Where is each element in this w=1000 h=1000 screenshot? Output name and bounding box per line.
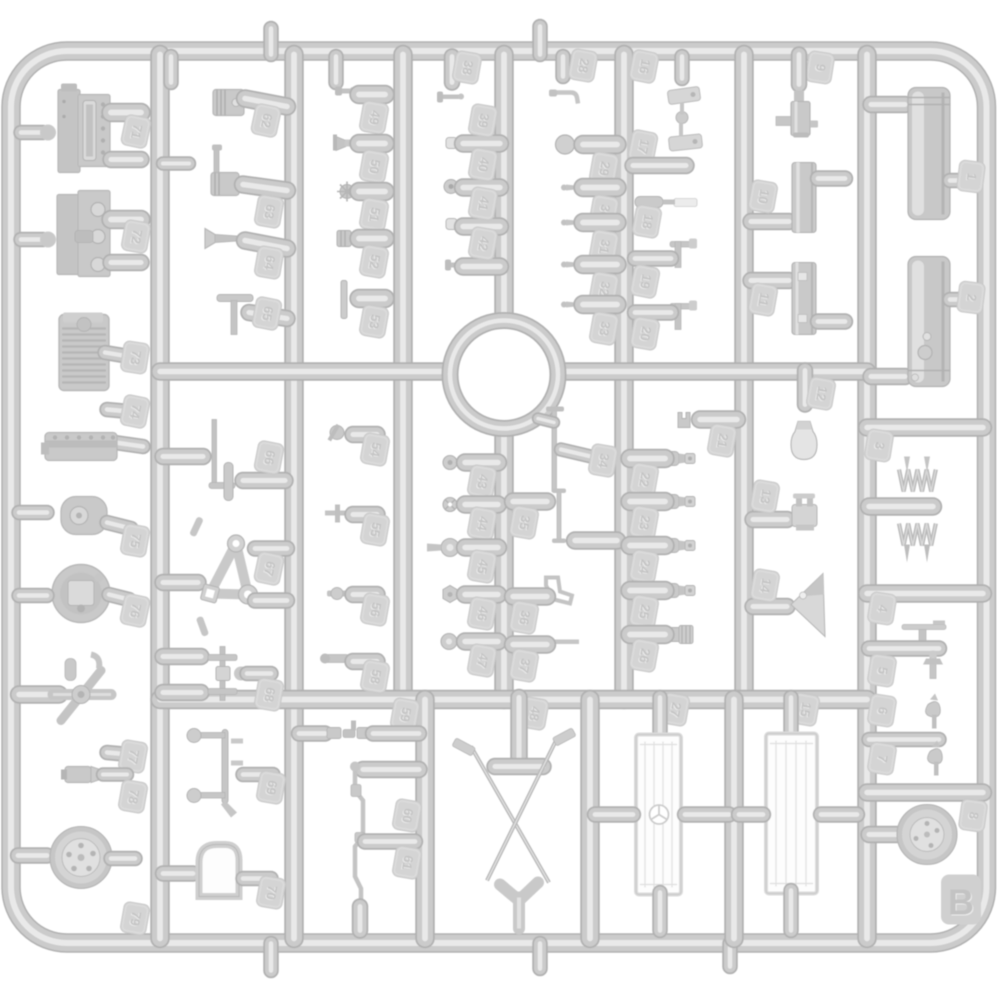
svg-text:61: 61 <box>399 854 416 871</box>
svg-text:72: 72 <box>128 228 145 245</box>
svg-text:53: 53 <box>366 313 383 330</box>
svg-text:78: 78 <box>125 788 142 805</box>
svg-text:71: 71 <box>128 123 146 140</box>
svg-text:43: 43 <box>474 473 491 490</box>
svg-text:79: 79 <box>127 910 144 927</box>
svg-text:13: 13 <box>757 488 774 505</box>
svg-text:50: 50 <box>366 158 383 175</box>
svg-text:49: 49 <box>366 109 383 126</box>
svg-text:63: 63 <box>261 203 278 220</box>
svg-text:60: 60 <box>399 807 416 824</box>
svg-text:75: 75 <box>127 532 144 549</box>
svg-text:21: 21 <box>714 432 731 449</box>
svg-text:45: 45 <box>474 558 491 575</box>
svg-text:55: 55 <box>367 521 384 538</box>
svg-text:15: 15 <box>797 701 814 718</box>
svg-text:23: 23 <box>636 514 653 531</box>
svg-text:68: 68 <box>261 686 278 703</box>
svg-text:41: 41 <box>475 195 492 212</box>
svg-text:47: 47 <box>474 652 491 669</box>
svg-text:76: 76 <box>127 602 145 619</box>
svg-text:66: 66 <box>261 449 278 466</box>
svg-text:22: 22 <box>636 471 653 488</box>
svg-text:77: 77 <box>125 748 142 765</box>
svg-text:73: 73 <box>127 349 144 366</box>
svg-text:36: 36 <box>516 609 533 626</box>
svg-text:35: 35 <box>516 514 533 531</box>
svg-text:40: 40 <box>475 156 492 173</box>
svg-text:62: 62 <box>258 112 276 129</box>
svg-text:59: 59 <box>397 706 414 723</box>
svg-text:39: 39 <box>475 112 492 129</box>
svg-text:19: 19 <box>637 273 654 290</box>
svg-text:31: 31 <box>596 238 613 255</box>
svg-text:46: 46 <box>474 605 491 622</box>
svg-text:25: 25 <box>636 603 653 620</box>
svg-text:10: 10 <box>755 188 772 205</box>
svg-text:42: 42 <box>475 235 492 252</box>
svg-text:32: 32 <box>596 280 613 297</box>
svg-text:28: 28 <box>575 57 592 74</box>
svg-text:37: 37 <box>516 657 533 674</box>
svg-text:58: 58 <box>367 668 384 685</box>
svg-text:20: 20 <box>637 325 654 342</box>
svg-text:29: 29 <box>596 160 613 177</box>
svg-text:33: 33 <box>596 320 613 337</box>
svg-text:51: 51 <box>366 206 383 223</box>
svg-text:12: 12 <box>813 385 830 402</box>
svg-text:26: 26 <box>636 647 653 664</box>
svg-text:18: 18 <box>639 213 656 230</box>
svg-text:16: 16 <box>636 58 653 75</box>
svg-text:69: 69 <box>263 779 280 796</box>
svg-text:B: B <box>948 882 974 923</box>
svg-text:56: 56 <box>367 601 384 618</box>
svg-text:70: 70 <box>263 884 280 901</box>
svg-text:65: 65 <box>259 305 276 322</box>
svg-text:38: 38 <box>459 59 476 76</box>
svg-text:52: 52 <box>366 253 383 270</box>
svg-text:67: 67 <box>261 560 279 577</box>
svg-text:17: 17 <box>635 138 652 155</box>
svg-text:11: 11 <box>755 292 772 308</box>
svg-text:27: 27 <box>667 701 684 718</box>
svg-text:48: 48 <box>526 705 543 722</box>
